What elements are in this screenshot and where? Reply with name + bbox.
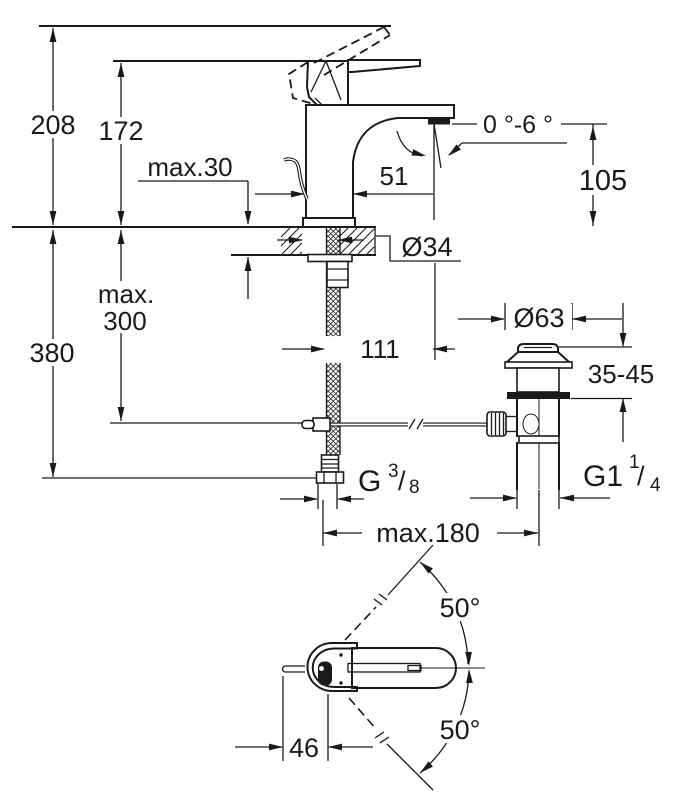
dim-reach: 111	[360, 334, 400, 364]
dim-hose-max-line2: 300	[103, 306, 146, 336]
handle-slot	[348, 664, 421, 673]
aerator	[428, 118, 450, 125]
label-supply-thread: G 3 / 8	[358, 461, 420, 498]
pop-up-waste-assembly	[487, 344, 572, 546]
faucet-technical-drawing: 208 172 max.30 51 0 °-6 ° 105 Ø34 380 ma…	[0, 0, 685, 800]
escutcheon-outline	[307, 643, 357, 691]
handle-body	[307, 61, 348, 105]
supply-thread-slash: /	[398, 466, 406, 496]
waste-flange	[505, 362, 572, 368]
supply-thread-base: G	[358, 465, 381, 498]
lever-handle	[348, 60, 420, 72]
label-waste-thread: G1 1 / 4	[583, 452, 661, 496]
supply-thread-sup: 3	[388, 461, 399, 482]
waste-upper-body	[517, 368, 559, 392]
pop-up-rod	[302, 417, 488, 432]
dim-total-height: 208	[30, 110, 75, 140]
dim-rod-offset: 46	[289, 733, 319, 763]
dim-hole-diameter: Ø34	[401, 232, 452, 262]
tee-boss	[523, 414, 539, 434]
rod-plan-stub	[283, 666, 306, 672]
left-dimensions	[53, 28, 248, 477]
waste-coupling	[519, 436, 559, 443]
dim-under-total: 380	[29, 338, 74, 368]
supply-thread-sub: 8	[409, 477, 420, 498]
waste-thread-base: G1	[583, 460, 623, 493]
waste-thread-sub: 4	[650, 475, 661, 496]
mounting-nut	[327, 262, 348, 288]
supply-hex-nut	[317, 472, 344, 483]
rod-joint-block	[313, 418, 330, 431]
lever-raised-dashed	[289, 27, 390, 105]
faucet-plan-view	[235, 545, 485, 790]
waste-thread-slash: /	[637, 461, 645, 491]
dim-deck-max: max.30	[147, 152, 232, 182]
dim-swivel-up: 50°	[440, 593, 481, 623]
dim-swivel-down: 50°	[440, 715, 481, 745]
dim-handle-height: 172	[98, 116, 143, 146]
outlet-plan	[318, 662, 332, 686]
dim-waste-diameter: Ø63	[513, 303, 564, 333]
dim-body-width: 51	[380, 161, 409, 191]
dim-spout-angle: 0 °-6 °	[483, 111, 553, 139]
waste-gasket	[507, 392, 570, 399]
dim-outlet-height: 105	[579, 165, 627, 197]
dim-basin-range: 35-45	[588, 359, 655, 389]
mounting-washer	[308, 255, 352, 262]
drawing-canvas: 208 172 max.30 51 0 °-6 ° 105 Ø34 380 ma…	[0, 0, 685, 800]
rod-end-cap	[302, 421, 314, 429]
spout-and-body	[303, 105, 454, 227]
dim-rod-max: max.180	[376, 518, 480, 548]
dim-hose-max-line1: max.	[98, 279, 154, 309]
